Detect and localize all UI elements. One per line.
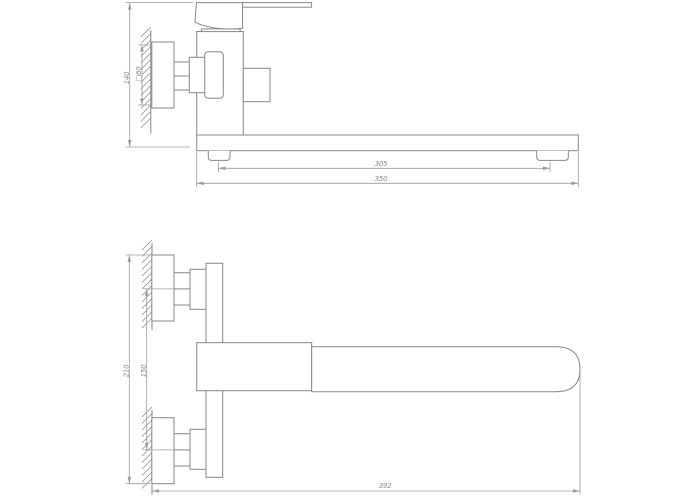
lever-handle-base — [195, 3, 243, 29]
dim-label-overall-span: 210 — [123, 364, 131, 378]
lever-handle-arm — [243, 3, 312, 8]
arrowhead — [128, 3, 132, 10]
connection-nut-lower — [190, 429, 206, 469]
connection-nut — [205, 52, 224, 99]
faucet-technical-drawing: 140 □60 305 350 — [0, 0, 700, 500]
dim-label-overall-length: 392 — [379, 482, 393, 490]
arrowhead — [140, 45, 144, 52]
arrowhead — [571, 182, 578, 186]
spout-left-foot — [208, 151, 230, 161]
spout-base — [197, 343, 312, 391]
dim-spout-length: 350 — [197, 152, 579, 187]
wall-plate — [152, 42, 174, 108]
wall-plate-lower — [152, 418, 174, 484]
arrowhead — [573, 489, 580, 493]
plan-view: 210 150 392 — [123, 240, 581, 495]
dim-label-feet-spacing: 305 — [375, 160, 389, 168]
arrowhead — [197, 182, 204, 186]
spout-bar — [197, 135, 579, 151]
arrowhead — [152, 489, 159, 493]
dim-label-connection-centers: 150 — [140, 364, 148, 378]
arrowhead — [128, 477, 132, 484]
arrowhead — [219, 167, 226, 171]
dim-label-overall-height: 140 — [123, 71, 131, 85]
connection-nut-upper — [190, 269, 206, 309]
drawing-sheet: 140 □60 305 350 — [0, 0, 700, 500]
arrowhead — [543, 167, 550, 171]
arrowhead — [128, 140, 132, 147]
spout-right-foot — [537, 151, 569, 161]
dim-label-spout-length: 350 — [375, 175, 389, 183]
dim-feet-spacing: 305 — [219, 160, 551, 173]
wall-plate-upper — [152, 255, 174, 321]
diverter-knob — [243, 68, 270, 101]
arrowhead — [128, 255, 132, 262]
side-view: 140 □60 305 350 — [123, 3, 579, 188]
dim-label-wall-plate: □60 — [135, 66, 143, 82]
connector-step — [189, 57, 205, 92]
spout-arm — [312, 347, 580, 392]
